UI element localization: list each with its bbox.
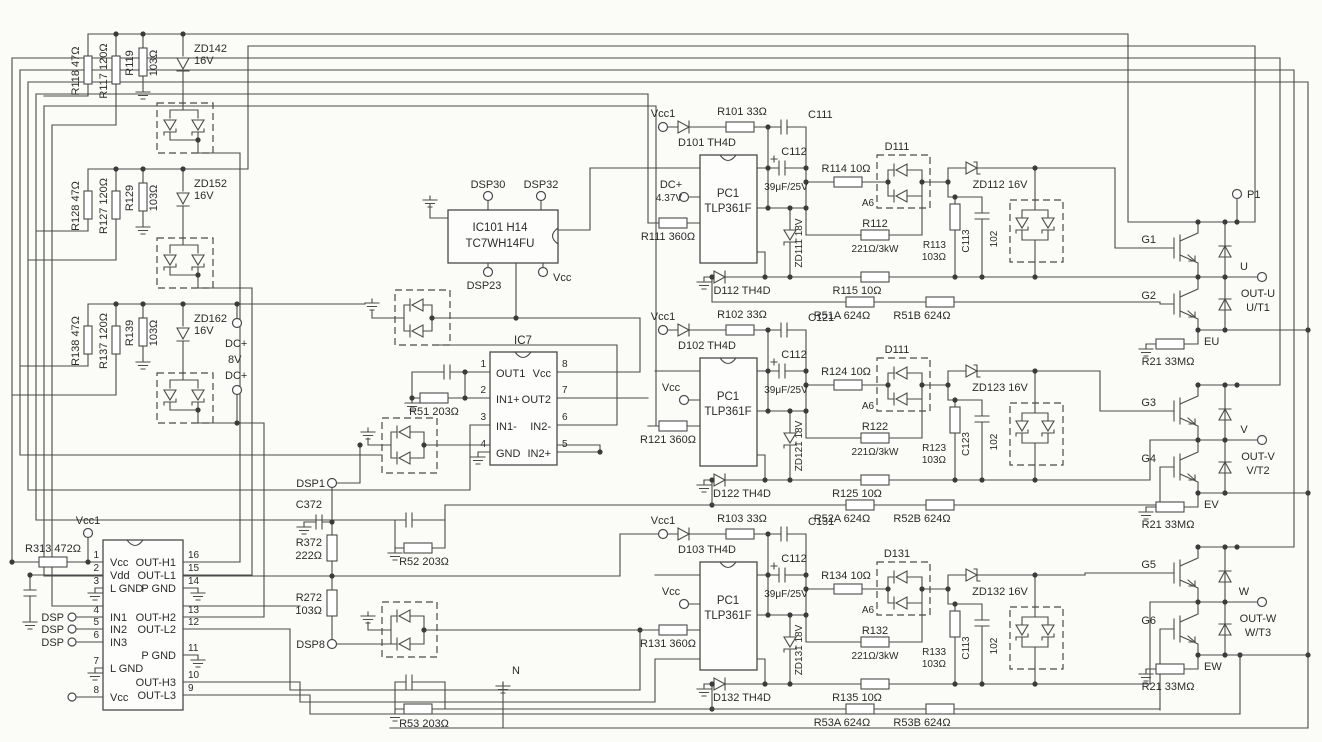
- dsp8-terminal: [328, 640, 337, 649]
- pin-number: 13: [188, 605, 200, 616]
- ic-part: TC7WH14FU: [465, 238, 534, 250]
- igbt-leg-u: P1 G1 G2 U OUT-U U/T1 EU R21 33MΩ: [1139, 189, 1308, 368]
- supply-label: DC+: [660, 179, 682, 191]
- ground-icon: [88, 669, 102, 680]
- dsp-input-terminal: [68, 625, 76, 633]
- output-sublabel: V/T2: [1246, 465, 1269, 477]
- vcc1-label: Vcc1: [651, 108, 675, 120]
- zener-label: ZD111 18V: [794, 218, 805, 267]
- junction-dots: [9, 301, 1310, 711]
- pin-label: OUT-H3: [136, 677, 176, 689]
- diode-pair-sub: A6: [862, 605, 875, 616]
- resistor-label: R122: [862, 421, 888, 433]
- supply-label: Vcc: [662, 382, 681, 394]
- pin-number: 4: [480, 439, 486, 450]
- pin-label: Vcc: [110, 557, 129, 569]
- clamp-diode-icon: [397, 426, 410, 438]
- ground-icon: [88, 589, 102, 600]
- resistor-label: R123: [922, 443, 946, 454]
- ground-icon: [361, 428, 375, 439]
- resistor-label: R114 10Ω: [822, 163, 871, 175]
- pin-label: IN2-: [530, 421, 551, 433]
- clamp-diode-icon: [410, 299, 423, 311]
- pin-number: 12: [188, 617, 200, 628]
- resistor-label: R124 10Ω: [821, 366, 871, 378]
- vcc1-terminal: [84, 529, 93, 538]
- diode-label: D101 TH4D: [678, 137, 736, 149]
- leg-shapes: [1139, 382, 1308, 519]
- pin-number: 3: [93, 576, 99, 587]
- cap-value: 39μF/25V: [764, 589, 808, 600]
- p1-label: P1: [1247, 189, 1260, 201]
- pin-label: OUT-L3: [137, 690, 176, 702]
- left-rc-group-1: R118 47Ω R117 120Ω R119 103Ω ZD142 16V: [70, 31, 227, 153]
- resistor-value: 103Ω: [148, 185, 160, 212]
- leg-shapes: [1139, 544, 1308, 681]
- dsp-label: DSP: [41, 612, 64, 624]
- diode-pair-label: D111: [885, 141, 910, 153]
- phase-label: W: [1239, 586, 1250, 598]
- zener-voltage: 16V: [194, 190, 214, 202]
- vcc1-label: Vcc1: [76, 515, 100, 527]
- cap-label: C112: [781, 349, 806, 361]
- diode-label: D122 TH4D: [713, 488, 771, 500]
- cap-value: 39μF/25V: [764, 182, 808, 193]
- igbt-leg-v: G3 G4 V OUT-V V/T2 EV R21 33MΩ: [1139, 382, 1308, 531]
- dsp-input-terminal: [68, 638, 76, 646]
- pin-label: IN2+: [527, 448, 551, 460]
- pin-label: Vcc: [110, 692, 129, 704]
- resistor-value: 103Ω: [922, 659, 947, 670]
- zener-label: ZD123 16V: [972, 382, 1028, 394]
- zener-label: ZD142: [194, 43, 227, 55]
- pin-label: OUT-H1: [136, 557, 176, 569]
- igbt-leg-w: G5 G6 W OUT-W W/T3 EW R21 33MΩ: [1139, 544, 1308, 693]
- resistor-value: 103Ω: [148, 50, 160, 77]
- r51-label: R51 203Ω: [409, 406, 459, 418]
- resistor-label: R127 120Ω: [98, 178, 110, 234]
- phase-label: V: [1240, 424, 1248, 436]
- resistor-label: R103 33Ω: [717, 513, 767, 525]
- r272-label: R272: [296, 592, 322, 604]
- pin-label: GND: [496, 448, 521, 460]
- resistor-r53: [404, 704, 432, 714]
- opto-channel-3: Vcc1 D103 TH4D R103 33Ω C131 C112 39μF/2…: [640, 513, 1160, 729]
- emitter-label: EW: [1204, 661, 1222, 673]
- resistor-label: R53A 624Ω: [814, 717, 871, 729]
- resistor-r272: [327, 590, 337, 616]
- gate-label: G6: [1141, 615, 1156, 627]
- pin-number: 7: [562, 385, 568, 396]
- gate-label: G1: [1141, 234, 1156, 246]
- vcc1-label: Vcc1: [651, 515, 675, 527]
- pin-number: 1: [93, 550, 99, 561]
- ground-icon: [297, 523, 311, 534]
- dc-label: DC+: [225, 338, 247, 350]
- zener-voltage: 16V: [194, 55, 214, 67]
- pin-number: 7: [93, 656, 99, 667]
- vcc-terminal: [68, 693, 76, 701]
- emitter-label: EU: [1204, 336, 1219, 348]
- resistor-label: R101 33Ω: [717, 106, 767, 118]
- output-sublabel: W/T3: [1245, 627, 1271, 639]
- resistor-value: 221Ω/3kW: [852, 651, 900, 662]
- cap-label: C113: [961, 636, 972, 660]
- clamp-diode-icon: [397, 452, 410, 464]
- pin-label: OUT-L1: [137, 570, 176, 582]
- zener-label: ZD121 18V: [794, 420, 805, 471]
- pin-number: 6: [562, 412, 568, 423]
- pin-label: Vcc: [533, 368, 552, 380]
- resistor-label: R134 10Ω: [821, 570, 871, 582]
- resistor-r313: [39, 557, 67, 567]
- dsp23-terminal: [484, 268, 493, 277]
- resistor-label: R119: [124, 50, 136, 75]
- resistor-r51: [420, 393, 448, 403]
- pin-number: 3: [480, 412, 486, 423]
- resistor-label: R111 360Ω: [641, 231, 695, 243]
- pin-number: 2: [93, 563, 99, 574]
- schematic-page: R118 47Ω R117 120Ω R119 103Ω ZD142 16V R…: [0, 0, 1322, 742]
- ground-icon: [23, 618, 37, 629]
- pin-number: 6: [93, 630, 99, 641]
- dc-plus-terminal: [233, 319, 242, 328]
- dsp32-terminal: [537, 192, 546, 201]
- wire-harness: [9, 34, 1310, 728]
- neutral-label: N: [512, 665, 520, 677]
- supply-value: 4.37V: [656, 193, 682, 204]
- dc-label: 8V: [228, 354, 242, 366]
- zener-label: ZD132 16V: [972, 586, 1028, 598]
- pin-number: 8: [562, 359, 568, 370]
- resistor-label: R52B 624Ω: [893, 513, 950, 525]
- clamp-diode-icon: [397, 638, 410, 650]
- resistor-label: R139: [124, 320, 136, 346]
- dsp-rc-column: DSP1 C372 R372 222Ω R272 103Ω DSP8 R52 2…: [295, 478, 520, 730]
- cap-value: 102: [989, 230, 1000, 247]
- pin-label: OUT2: [522, 394, 551, 406]
- r372-value: 222Ω: [295, 550, 322, 562]
- left-rc-group-2: R128 47Ω R127 120Ω R129 103Ω ZD152 16V: [70, 166, 227, 288]
- pin-label: IN3: [110, 637, 127, 649]
- ground-icon: [361, 612, 375, 623]
- pin-number: 4: [93, 605, 99, 616]
- ic101-body: [448, 210, 558, 263]
- resistor-label: R128 47Ω: [70, 181, 82, 231]
- dsp-input-terminal: [68, 613, 76, 621]
- opto-name: PC1: [717, 595, 739, 607]
- vcc1-label: Vcc1: [651, 311, 675, 323]
- pin-label: Vdd: [110, 570, 130, 582]
- dsp1-label: DSP1: [296, 478, 325, 490]
- resistor-label: R125 10Ω: [832, 488, 882, 500]
- dsp8-label: DSP8: [296, 639, 325, 651]
- resistor-label: R102 33Ω: [717, 309, 767, 321]
- pin-label: OUT-H2: [136, 612, 176, 624]
- gate-label: G5: [1141, 559, 1156, 571]
- dsp30-terminal: [484, 192, 493, 201]
- terminal-label: DSP23: [467, 280, 502, 292]
- resistor-value: 221Ω/3kW: [852, 447, 900, 458]
- r372-label: R372: [296, 537, 322, 549]
- cap-label: C112: [781, 146, 806, 158]
- pin-label: P GND: [141, 583, 176, 595]
- diode-pair-sub: A6: [862, 401, 875, 412]
- phase-label: U: [1240, 261, 1248, 273]
- terminal-label: Vcc: [553, 272, 572, 284]
- clamp-diode-icon: [410, 325, 423, 337]
- diode-pair-label: D131: [884, 548, 910, 560]
- resistor-label: R115 10Ω: [833, 285, 882, 297]
- resistor-value: 103Ω: [922, 455, 947, 466]
- opto-channel-1: Vcc1 D101 TH4D R101 33Ω C111 C112 39μF/2…: [641, 106, 1160, 322]
- resistor-label: R137 120Ω: [98, 313, 110, 369]
- dsp1-terminal: [328, 479, 337, 488]
- pin-label: L GND: [110, 583, 143, 595]
- diode-pair-label: D111: [885, 344, 910, 356]
- resistor-value: 103Ω: [148, 320, 160, 347]
- pin-label: IN2: [110, 624, 127, 636]
- pin-label: IN1-: [496, 421, 517, 433]
- r272-value: 103Ω: [295, 605, 322, 617]
- resistor-label: R51B 624Ω: [893, 310, 950, 322]
- pin-number: 2: [480, 385, 486, 396]
- opto-part: TLP361F: [704, 406, 751, 418]
- pin-number: 8: [93, 685, 99, 696]
- dc-plus-terminal: [233, 386, 242, 395]
- ground-icon: [191, 656, 205, 667]
- output-sublabel: U/T1: [1246, 302, 1270, 314]
- diode-label: D102 TH4D: [678, 340, 736, 352]
- ground-icon: [365, 299, 379, 310]
- emitter-label: EV: [1204, 499, 1219, 511]
- pin-label: OUT-L2: [137, 624, 176, 636]
- left-rc-group-3: R138 47Ω R137 120Ω R139 103Ω ZD162 16V D…: [70, 301, 247, 423]
- zener-label: ZD131 18V: [794, 624, 805, 675]
- zener-label: ZD112 16V: [973, 179, 1028, 191]
- pin-number: 9: [188, 683, 194, 694]
- zener-voltage: 16V: [194, 325, 214, 337]
- resistor-value: 103Ω: [922, 252, 947, 263]
- resistor-label: R121 360Ω: [640, 434, 696, 446]
- r53-label: R53 203Ω: [399, 718, 449, 730]
- cap-value: 102: [989, 433, 1000, 450]
- diode-label: D132 TH4D: [713, 692, 771, 704]
- pin-number: 1: [480, 359, 486, 370]
- ic101-inverter: DSP30 DSP32 IC101 H14 TC7WH14FU DSP23 Vc…: [448, 179, 572, 292]
- resistor-label: R133: [922, 647, 946, 658]
- terminal-label: DSP32: [524, 179, 559, 191]
- vcc-terminal: [539, 268, 548, 277]
- shunt-label: R21 33MΩ: [1142, 519, 1195, 531]
- cap-label: C113: [961, 229, 972, 253]
- gate-label: G4: [1141, 453, 1156, 465]
- pin-number: 10: [188, 670, 200, 681]
- resistor-value: 221Ω/3kW: [852, 244, 900, 255]
- cap-label: C121: [808, 312, 834, 324]
- zener-label: ZD152: [194, 178, 227, 190]
- pin-label: IN1: [110, 612, 127, 624]
- ic-name: IC7: [514, 335, 532, 347]
- ground-icon: [471, 453, 485, 464]
- diode-pair-sub: A6: [862, 198, 875, 209]
- cap-value: 102: [989, 637, 1000, 654]
- output-label: OUT-W: [1240, 613, 1277, 625]
- resistor-label: R112: [862, 218, 887, 230]
- pin-number: 16: [188, 550, 200, 561]
- dsp-label: DSP: [41, 637, 64, 649]
- resistor-label: R135 10Ω: [832, 692, 882, 704]
- shunt-label: R21 33MΩ: [1142, 356, 1195, 368]
- resistor-label: R131 360Ω: [640, 638, 696, 650]
- pin-number: 14: [188, 576, 200, 587]
- pin-number: 5: [562, 439, 568, 450]
- diode-label: D112 TH4D: [713, 285, 770, 297]
- dc-label: DC+: [225, 370, 247, 382]
- cap-label: C123: [961, 432, 972, 456]
- cap-label: C112: [781, 553, 806, 565]
- terminal-label: DSP30: [471, 179, 506, 191]
- gate-driver-ic: Vcc1 R313 472Ω DSP DSP DSP 1 2 3 4 5 6 7…: [25, 515, 200, 710]
- shunt-label: R21 33MΩ: [1142, 681, 1195, 693]
- ic-name: IC101 H14: [473, 222, 529, 234]
- output-label: OUT-V: [1241, 451, 1275, 463]
- diode-label: D103 TH4D: [678, 544, 736, 556]
- pin-number: 5: [93, 617, 99, 628]
- resistor-label: R129: [124, 185, 136, 211]
- pin-number: 11: [188, 643, 199, 654]
- dsp-label: DSP: [41, 624, 64, 636]
- opto-name: PC1: [717, 188, 739, 200]
- pin-number: 15: [188, 563, 200, 574]
- pin-label: IN1+: [496, 394, 520, 406]
- zener-label: ZD162: [194, 313, 227, 325]
- clamp-diode-icon: [397, 610, 410, 622]
- supply-label: Vcc: [662, 586, 681, 598]
- p1-terminal: [1233, 190, 1242, 199]
- resistor-label: R118 47Ω: [70, 47, 82, 96]
- leg-shapes: [1139, 219, 1308, 356]
- opto-name: PC1: [717, 391, 739, 403]
- resistor-label: R53B 624Ω: [893, 717, 950, 729]
- resistor-label: R117 120Ω: [98, 43, 110, 98]
- r52-label: R52 203Ω: [399, 556, 449, 568]
- inverter-gate-drive-schematic: R118 47Ω R117 120Ω R119 103Ω ZD142 16V R…: [0, 0, 1322, 742]
- opto-part: TLP361F: [704, 610, 751, 622]
- pin-label: L GND: [110, 663, 143, 675]
- output-label: OUT-U: [1241, 288, 1275, 300]
- resistor-label: R132: [862, 625, 888, 637]
- pin-label: OUT1: [496, 368, 525, 380]
- r313-label: R313 472Ω: [25, 543, 81, 555]
- cap-label: C111: [808, 109, 833, 121]
- gate-label: G2: [1141, 290, 1156, 302]
- ground-icon: [191, 589, 205, 600]
- opto-channel-2: Vcc1 D102 TH4D R102 33Ω C121 C112 39μF/2…: [640, 309, 1160, 525]
- resistor-r52: [404, 543, 432, 553]
- cap-value: 39μF/25V: [764, 385, 808, 396]
- resistor-r372: [327, 535, 337, 561]
- pin-label: P GND: [141, 650, 176, 662]
- cap-label: C131: [808, 516, 834, 528]
- gate-label: G3: [1141, 397, 1156, 409]
- c372-label: C372: [296, 499, 322, 511]
- opto-part: TLP361F: [704, 203, 751, 215]
- resistor-label: R138 47Ω: [70, 316, 82, 366]
- resistor-label: R113: [923, 240, 947, 251]
